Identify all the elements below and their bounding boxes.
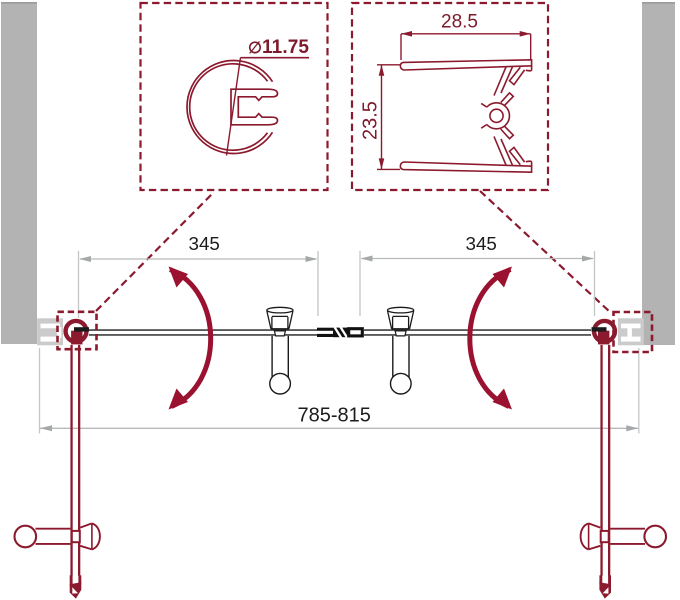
svg-text:∅11.75: ∅11.75 <box>248 37 309 58</box>
svg-text:785-815: 785-815 <box>298 404 371 426</box>
svg-text:345: 345 <box>466 233 497 254</box>
svg-text:345: 345 <box>189 233 220 254</box>
svg-text:23.5: 23.5 <box>360 101 382 140</box>
svg-text:28.5: 28.5 <box>441 11 478 32</box>
